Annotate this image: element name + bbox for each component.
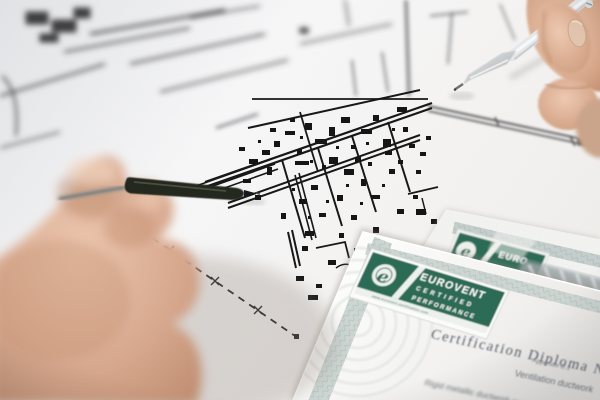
film-grain — [0, 0, 600, 400]
scene: e EURO Eurovent Certification Com — [0, 0, 600, 400]
photo-canvas: e EURO Eurovent Certification Com — [0, 0, 600, 400]
